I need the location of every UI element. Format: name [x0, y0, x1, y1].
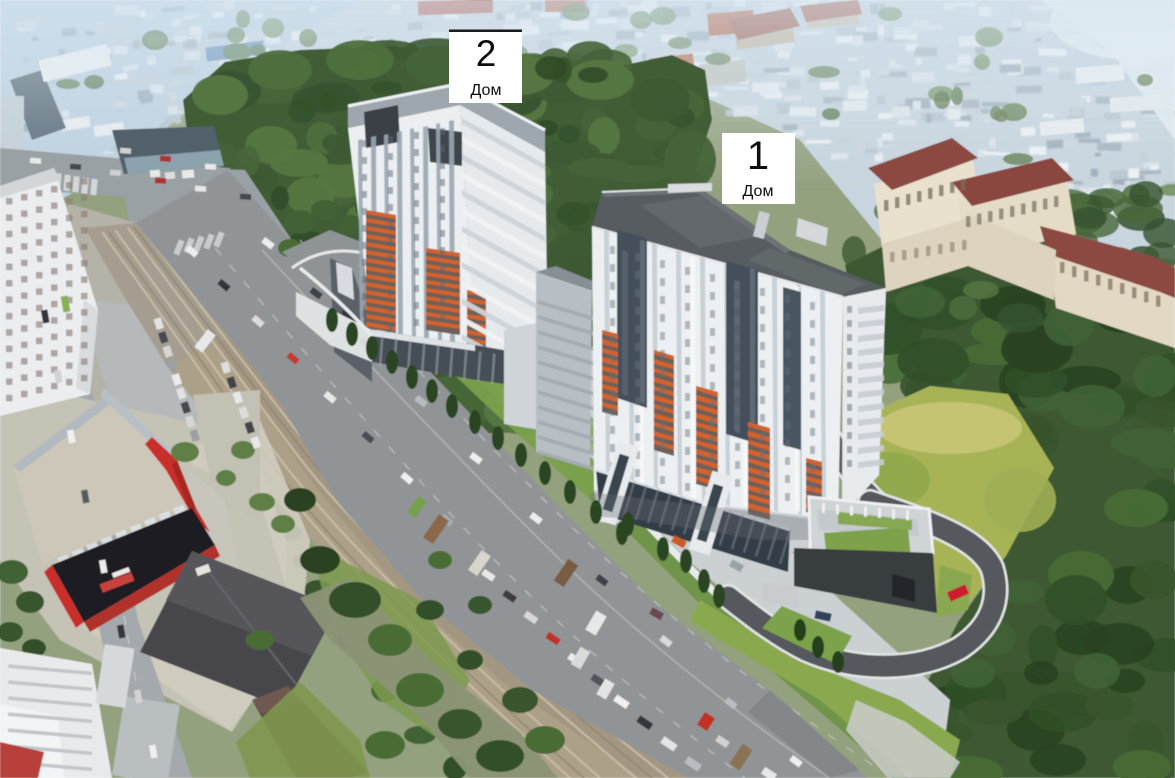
svg-text:Дом: Дом	[743, 183, 774, 200]
svg-text:1: 1	[747, 134, 769, 178]
svg-text:2: 2	[476, 33, 497, 74]
svg-text:Дом: Дом	[471, 82, 502, 99]
